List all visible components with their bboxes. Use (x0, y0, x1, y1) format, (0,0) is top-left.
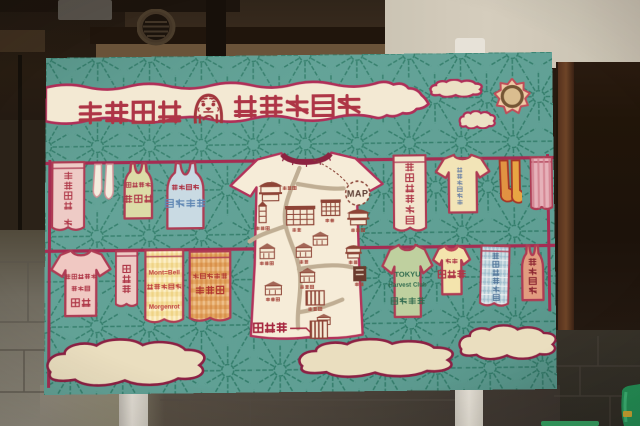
svg-text:Morgenrot: Morgenrot (149, 303, 180, 310)
svg-text:TOKYU: TOKYU (394, 269, 420, 278)
svg-text:Mont=Bell: Mont=Bell (149, 269, 181, 276)
svg-text:MAP: MAP (347, 188, 369, 198)
